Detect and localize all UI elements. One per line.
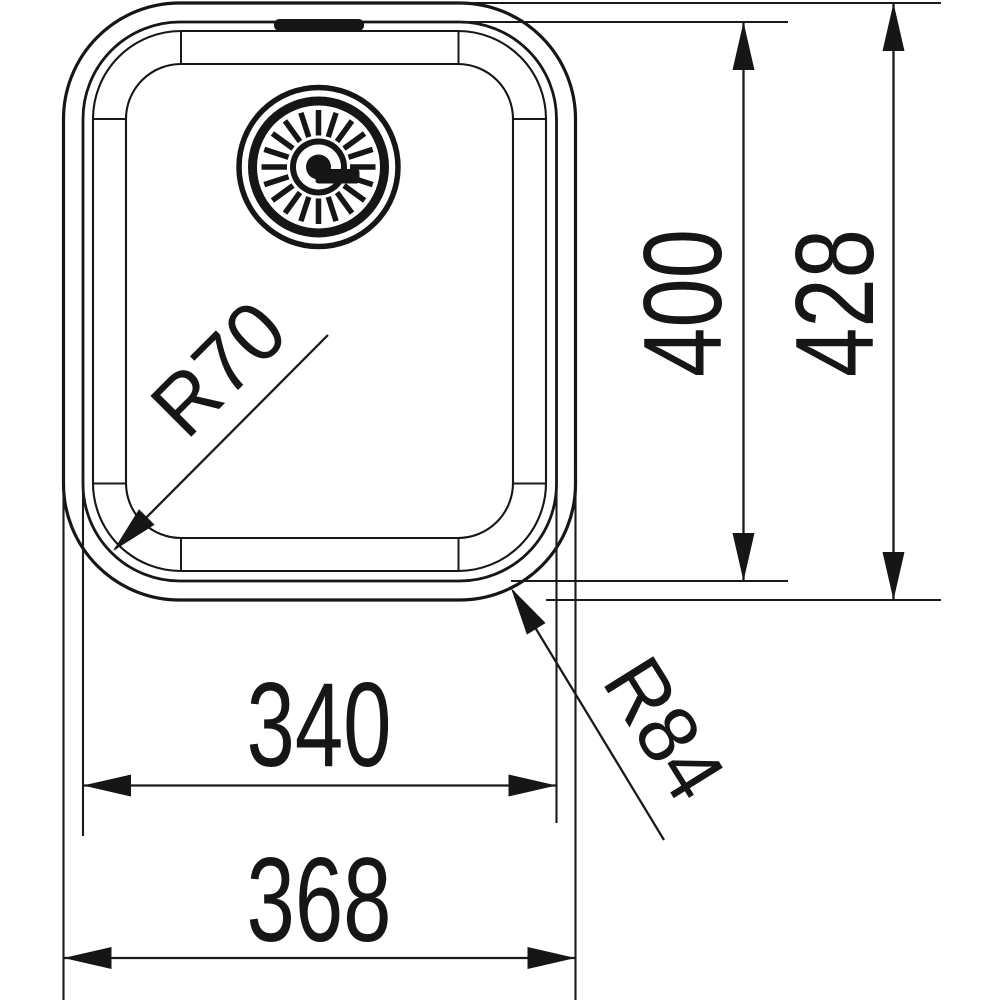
dimension-label-340: 340 xyxy=(247,658,392,792)
sink-outline-group xyxy=(64,3,576,600)
dimension-inner-width: 340 xyxy=(83,658,557,797)
strainer-spoke xyxy=(344,186,365,201)
sink-outer-edge-outline xyxy=(64,3,576,600)
arrowhead-368-right xyxy=(528,947,576,969)
arrowhead-428-top xyxy=(883,3,905,51)
strainer-spoke xyxy=(344,133,365,148)
strainer-spoke xyxy=(272,133,293,148)
drain-group xyxy=(239,88,398,247)
strainer-spoke xyxy=(337,192,352,213)
strainer-spoke xyxy=(328,197,336,221)
dimension-label-400: 400 xyxy=(621,229,745,377)
strainer-spoke xyxy=(285,192,300,213)
arrowhead-340-right xyxy=(509,775,557,797)
dimension-label-368: 368 xyxy=(247,833,392,967)
dimension-outer-width: 368 xyxy=(64,833,576,969)
strainer-spoke xyxy=(328,113,336,137)
dimension-inner-height: 400 xyxy=(621,22,755,581)
overflow-notch xyxy=(274,19,364,31)
radius-label-R84: R84 xyxy=(586,641,744,816)
arrowhead-R84 xyxy=(511,588,546,635)
extension-lines-group xyxy=(64,3,942,1000)
sink-technical-drawing: 400 428 340 368 R70 R84 xyxy=(0,0,1000,1000)
strainer-spoke xyxy=(301,197,309,221)
strainer-spoke xyxy=(272,186,293,201)
dimension-label-428: 428 xyxy=(773,229,897,377)
strainer-spoke xyxy=(337,121,352,142)
drain-cap-handle xyxy=(316,169,360,184)
strainer-spoke xyxy=(348,149,372,157)
radius-label-R70: R70 xyxy=(133,283,304,454)
dimension-outer-height: 428 xyxy=(773,3,905,600)
extension-lines xyxy=(64,3,942,1000)
radius-callout-outer: R84 xyxy=(511,588,744,840)
sink-technical-drawing-page: 400 428 340 368 R70 R84 xyxy=(0,0,1000,1000)
arrowhead-368-left xyxy=(64,947,112,969)
arrowhead-400-bottom xyxy=(733,533,755,581)
arrowhead-340-left xyxy=(83,775,131,797)
radius-callout-inner: R70 xyxy=(113,283,328,551)
strainer-spoke xyxy=(264,177,288,185)
arrowhead-428-bottom xyxy=(883,552,905,600)
strainer-spoke xyxy=(301,113,309,137)
strainer-spoke xyxy=(264,149,288,157)
arrowhead-400-top xyxy=(733,22,755,70)
bowl-opening-outline xyxy=(83,22,557,581)
strainer-spoke xyxy=(285,121,300,142)
